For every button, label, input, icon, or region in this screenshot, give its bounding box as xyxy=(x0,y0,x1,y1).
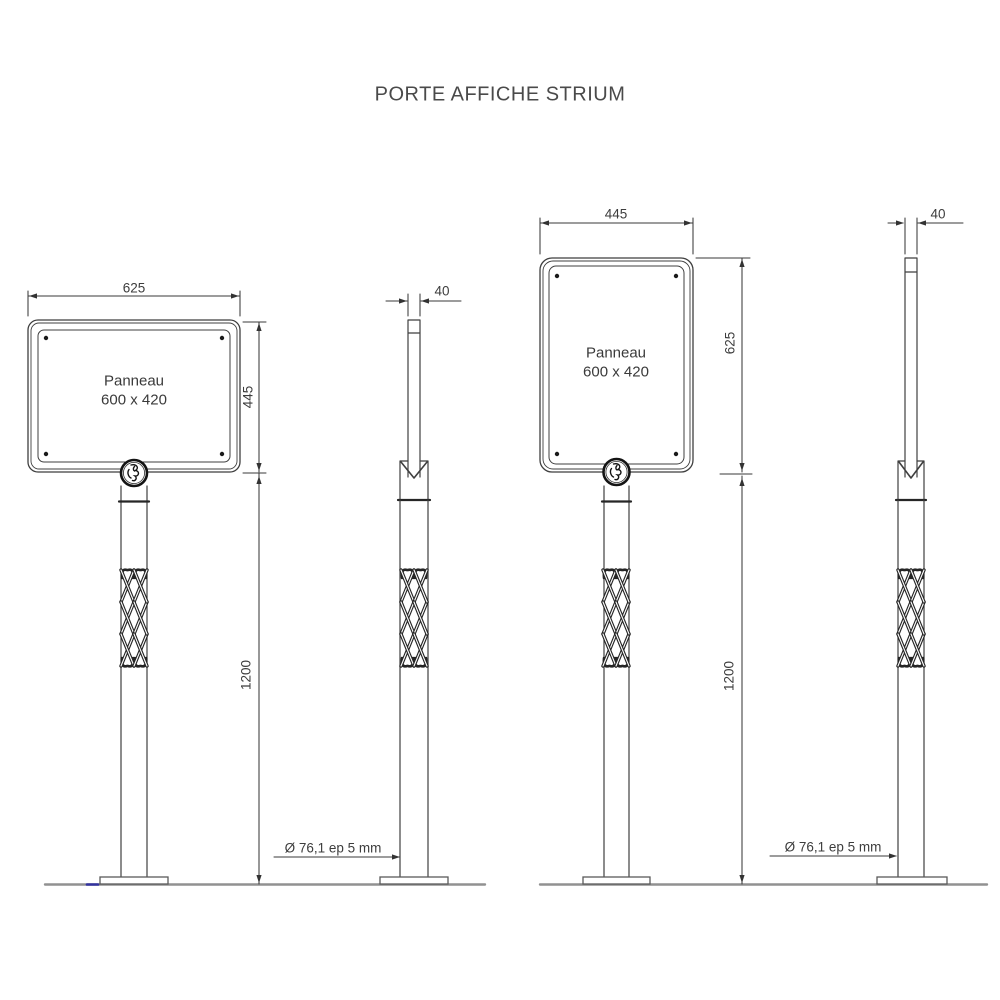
dim-landscape-width: 625 xyxy=(123,281,146,295)
pole xyxy=(400,500,428,877)
panel-label-line1: Panneau xyxy=(104,374,164,389)
brand-badge-icon xyxy=(604,459,630,485)
base-plate xyxy=(583,877,650,884)
dim-panel-thickness-right: 40 xyxy=(930,207,945,221)
view-portrait-side xyxy=(877,258,947,884)
pole xyxy=(604,501,629,877)
brand-badge-icon xyxy=(121,460,147,486)
panel-clamp xyxy=(119,486,149,502)
base-plate xyxy=(380,877,448,884)
dim-portrait-height: 625 xyxy=(723,332,737,355)
dimension-lines xyxy=(28,218,963,884)
panel-edge xyxy=(408,320,420,477)
pole xyxy=(121,501,147,877)
panel-label-line2: 600 x 420 xyxy=(583,365,649,380)
clamp-head xyxy=(896,461,926,500)
panel-clamp xyxy=(602,486,631,502)
technical-drawing-page: PORTE AFFICHE STRIUM xyxy=(0,0,1000,1000)
panel-label-line1: Panneau xyxy=(586,346,646,361)
panel-label-line2: 600 x 420 xyxy=(101,393,167,408)
base-plate xyxy=(100,877,168,884)
lattice-pattern xyxy=(603,570,629,667)
clamp-head xyxy=(398,461,430,500)
lattice-pattern xyxy=(401,570,427,667)
dim-pole-height-right: 1200 xyxy=(722,661,736,691)
panel-edge xyxy=(905,258,917,477)
lattice-pattern xyxy=(121,570,147,667)
tube-spec-label-left: Ø 76,1 ep 5 mm xyxy=(285,841,382,855)
tube-spec-label-right: Ø 76,1 ep 5 mm xyxy=(785,840,882,854)
dim-panel-thickness-left: 40 xyxy=(434,284,449,298)
dim-landscape-height: 445 xyxy=(241,386,255,409)
dim-pole-height-left: 1200 xyxy=(239,660,253,690)
base-plate xyxy=(877,877,947,884)
view-landscape-side xyxy=(380,320,448,884)
lattice-pattern xyxy=(898,570,924,667)
dim-portrait-width: 445 xyxy=(605,207,628,221)
pole xyxy=(898,500,924,877)
